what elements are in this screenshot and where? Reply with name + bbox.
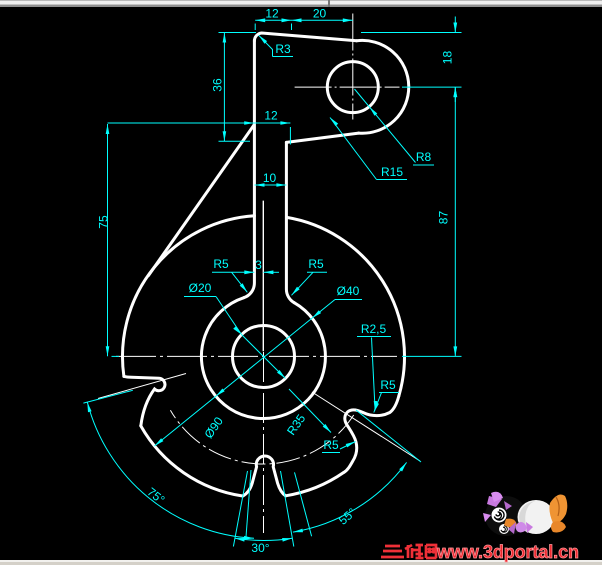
- svg-text:R5: R5: [308, 257, 324, 271]
- svg-text:36: 36: [211, 78, 225, 92]
- svg-text:R8: R8: [416, 150, 432, 164]
- svg-text:R15: R15: [381, 165, 403, 179]
- svg-text:R5: R5: [323, 438, 339, 452]
- svg-text:75°: 75°: [144, 485, 167, 507]
- svg-text:10: 10: [263, 171, 277, 185]
- svg-text:R2,5: R2,5: [361, 322, 387, 336]
- svg-text:R35: R35: [284, 411, 308, 437]
- svg-text:18: 18: [441, 51, 455, 65]
- svg-text:12: 12: [264, 109, 278, 123]
- svg-text:87: 87: [437, 211, 451, 225]
- svg-text:75: 75: [97, 215, 111, 229]
- svg-text:R5: R5: [213, 257, 229, 271]
- svg-text:R3: R3: [275, 42, 291, 56]
- svg-text:R5: R5: [380, 378, 396, 392]
- svg-text:20: 20: [313, 6, 327, 20]
- svg-text:Ø40: Ø40: [337, 284, 360, 298]
- svg-text:Ø20: Ø20: [189, 281, 212, 295]
- svg-text:30°: 30°: [251, 541, 269, 555]
- svg-text:12: 12: [265, 6, 279, 20]
- svg-text:www.3dportal.cn: www.3dportal.cn: [436, 542, 579, 562]
- svg-text:3: 3: [255, 258, 262, 272]
- svg-text:Ø90: Ø90: [201, 414, 226, 441]
